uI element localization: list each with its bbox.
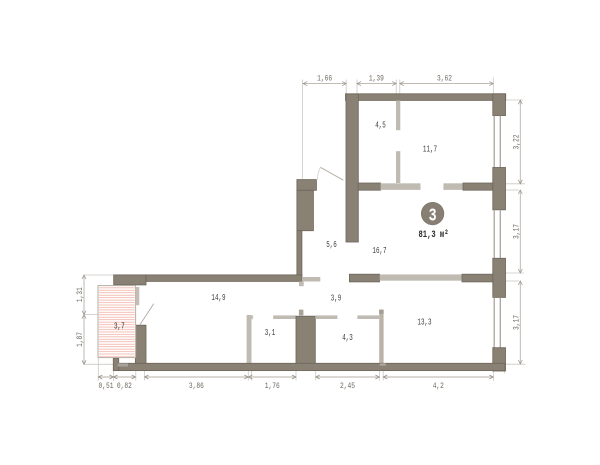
- svg-text:13,3: 13,3: [417, 317, 431, 328]
- svg-text:14,9: 14,9: [211, 292, 225, 303]
- svg-text:3,17: 3,17: [512, 315, 521, 330]
- svg-text:1,39: 1,39: [369, 74, 384, 83]
- svg-text:0,51: 0,51: [99, 382, 114, 391]
- svg-text:16,7: 16,7: [372, 245, 386, 256]
- svg-text:1,76: 1,76: [265, 382, 280, 391]
- svg-text:2,45: 2,45: [340, 382, 355, 391]
- svg-text:4,3: 4,3: [342, 332, 353, 343]
- svg-text:3,9: 3,9: [331, 293, 342, 304]
- svg-text:3,62: 3,62: [437, 74, 452, 83]
- svg-text:0,82: 0,82: [117, 382, 132, 391]
- svg-text:1,66: 1,66: [317, 74, 332, 83]
- svg-text:81,3 м²: 81,3 м²: [419, 230, 449, 241]
- svg-text:3,17: 3,17: [512, 224, 521, 239]
- svg-text:1,31: 1,31: [76, 287, 85, 302]
- svg-text:3,86: 3,86: [189, 382, 204, 391]
- svg-text:3,1: 3,1: [265, 327, 276, 338]
- svg-text:11,7: 11,7: [423, 144, 437, 155]
- svg-text:3,7: 3,7: [114, 321, 125, 332]
- svg-text:4,5: 4,5: [375, 119, 386, 130]
- svg-text:5,6: 5,6: [326, 239, 337, 250]
- svg-text:4,2: 4,2: [433, 382, 444, 391]
- svg-text:1,87: 1,87: [76, 332, 85, 347]
- svg-text:3,22: 3,22: [512, 134, 521, 149]
- svg-text:3: 3: [429, 206, 437, 226]
